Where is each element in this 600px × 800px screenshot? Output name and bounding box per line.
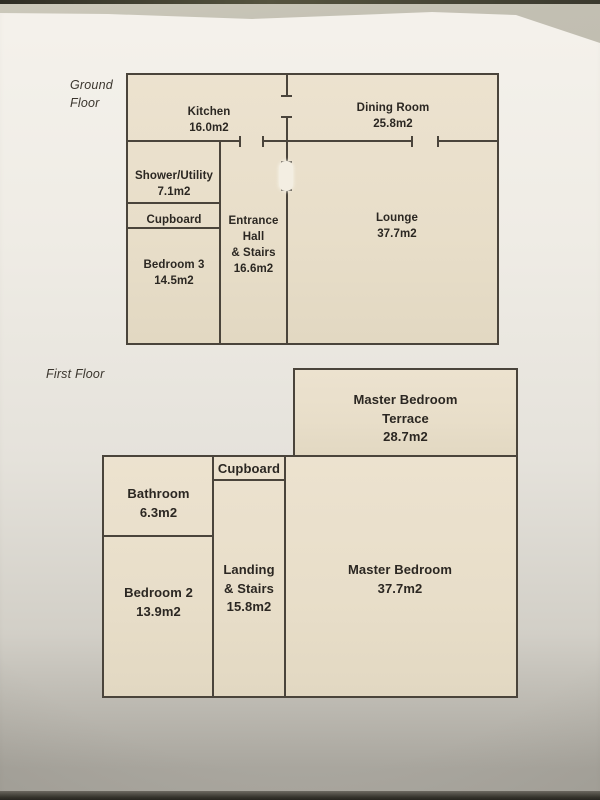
terrace-line2: Terrace bbox=[295, 410, 516, 429]
floorplan-photo: Ground Floor Kitchen 16.0m2 Dining Room bbox=[0, 0, 600, 800]
ground-floor-label-line1: Ground bbox=[70, 77, 113, 95]
entrance-hall-line2: Hall bbox=[220, 229, 287, 245]
shower-utility-name: Shower/Utility bbox=[128, 168, 220, 184]
ground-floor-label-line2: Floor bbox=[70, 95, 113, 113]
door-jamb-tick bbox=[239, 136, 241, 147]
correction-fluid-mark bbox=[279, 161, 293, 191]
entrance-hall-line1: Entrance bbox=[220, 213, 287, 229]
shower-utility-area: 7.1m2 bbox=[128, 184, 220, 200]
room-label-bedroom-3: Bedroom 3 14.5m2 bbox=[128, 257, 220, 289]
door-jamb-tick bbox=[262, 136, 264, 147]
wall-segment bbox=[438, 140, 497, 142]
wall-segment bbox=[212, 479, 286, 481]
room-label-bedroom-2: Bedroom 2 13.9m2 bbox=[104, 584, 213, 621]
kitchen-name: Kitchen bbox=[146, 104, 272, 120]
cupboard-ground-name: Cupboard bbox=[128, 212, 220, 228]
room-label-landing: Landing & Stairs 15.8m2 bbox=[212, 561, 286, 617]
cupboard-first-name: Cupboard bbox=[212, 460, 286, 479]
first-floor-plan: Cupboard Bathroom 6.3m2 Bedroom 2 13.9m2… bbox=[102, 455, 518, 698]
bedroom-3-name: Bedroom 3 bbox=[128, 257, 220, 273]
lounge-area: 37.7m2 bbox=[332, 226, 462, 242]
bedroom-3-area: 14.5m2 bbox=[128, 273, 220, 289]
photo-top-edge bbox=[0, 0, 600, 4]
terrace-area: 28.7m2 bbox=[295, 428, 516, 447]
terrace-line1: Master Bedroom bbox=[295, 391, 516, 410]
door-jamb-tick bbox=[281, 95, 292, 97]
wall-segment bbox=[286, 75, 288, 96]
door-jamb-tick bbox=[437, 136, 439, 147]
lounge-name: Lounge bbox=[332, 210, 462, 226]
entrance-hall-line3: & Stairs bbox=[220, 245, 287, 261]
room-label-kitchen: Kitchen 16.0m2 bbox=[146, 104, 272, 136]
ground-floor-plan: Kitchen 16.0m2 Dining Room 25.8m2 Shower… bbox=[126, 73, 499, 345]
bathroom-name: Bathroom bbox=[104, 485, 213, 504]
terrace-plan: Master Bedroom Terrace 28.7m2 bbox=[293, 368, 518, 455]
photo-bottom-edge bbox=[0, 791, 600, 800]
room-label-dining-room: Dining Room 25.8m2 bbox=[328, 100, 458, 132]
dining-room-name: Dining Room bbox=[328, 100, 458, 116]
room-label-lounge: Lounge 37.7m2 bbox=[332, 210, 462, 242]
master-bedroom-name: Master Bedroom bbox=[286, 561, 514, 580]
room-label-cupboard-first: Cupboard bbox=[212, 460, 286, 479]
entrance-hall-area: 16.6m2 bbox=[220, 261, 287, 277]
ground-floor-label: Ground Floor bbox=[70, 77, 113, 112]
landing-line1: Landing bbox=[212, 561, 286, 580]
wall-segment bbox=[128, 202, 219, 204]
door-jamb-tick bbox=[281, 116, 292, 118]
bathroom-area: 6.3m2 bbox=[104, 504, 213, 523]
room-label-bathroom: Bathroom 6.3m2 bbox=[104, 485, 213, 522]
bedroom-2-area: 13.9m2 bbox=[104, 603, 213, 622]
room-label-entrance-hall: Entrance Hall & Stairs 16.6m2 bbox=[220, 213, 287, 277]
kitchen-area: 16.0m2 bbox=[146, 120, 272, 136]
first-floor-label: First Floor bbox=[46, 366, 104, 384]
landing-line2: & Stairs bbox=[212, 580, 286, 599]
bedroom-2-name: Bedroom 2 bbox=[104, 584, 213, 603]
door-jamb-tick bbox=[411, 136, 413, 147]
room-label-master-bedroom: Master Bedroom 37.7m2 bbox=[286, 561, 514, 598]
landing-area: 15.8m2 bbox=[212, 598, 286, 617]
room-label-master-bedroom-terrace: Master Bedroom Terrace 28.7m2 bbox=[295, 391, 516, 447]
room-label-shower-utility: Shower/Utility 7.1m2 bbox=[128, 168, 220, 200]
dining-room-area: 25.8m2 bbox=[328, 116, 458, 132]
wall-segment bbox=[104, 535, 214, 537]
master-bedroom-area: 37.7m2 bbox=[286, 580, 514, 599]
wall-segment bbox=[263, 140, 412, 142]
room-label-cupboard-ground: Cupboard bbox=[128, 212, 220, 228]
wall-segment bbox=[128, 140, 240, 142]
